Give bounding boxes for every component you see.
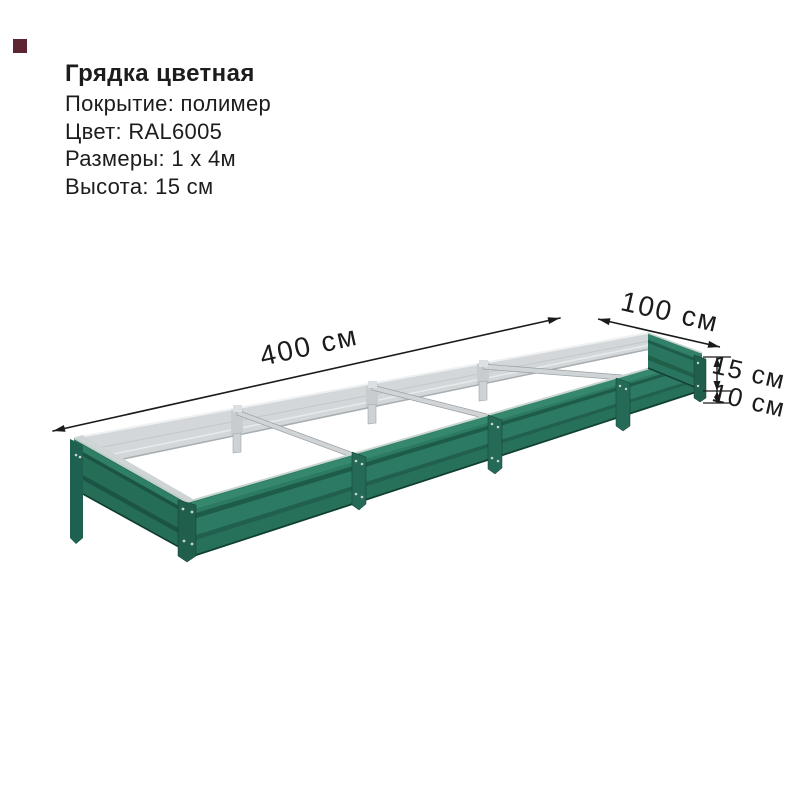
garden-bed-drawing: 400 см 100 см 15 см 10 см	[0, 0, 800, 800]
dimension-width-label: 100 см	[618, 285, 722, 338]
dimension-height: 15 см 10 см	[703, 349, 789, 423]
dimension-length-label: 400 см	[257, 320, 361, 372]
